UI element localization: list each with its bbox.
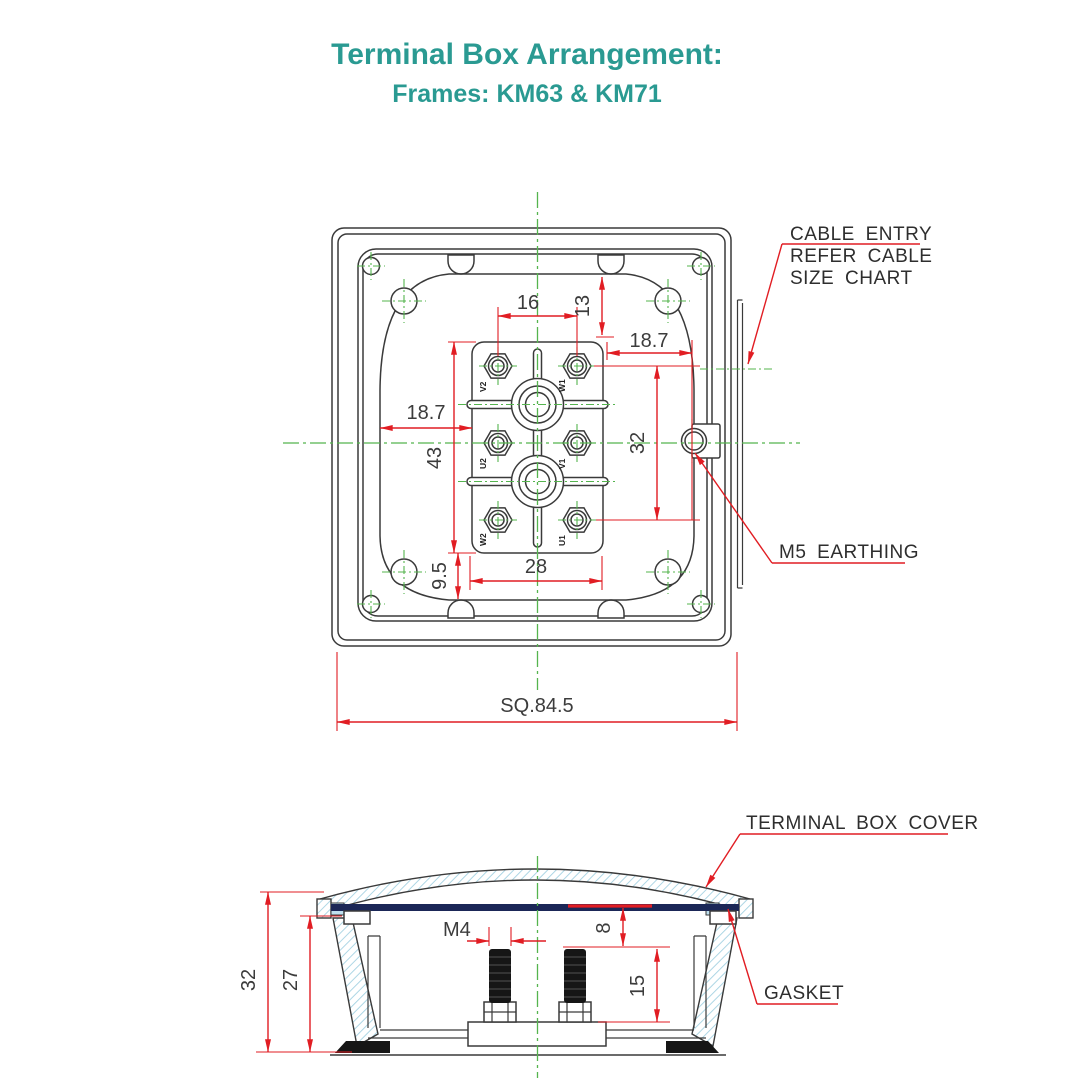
cable-entry-flange: [738, 300, 743, 588]
cable-entry-label-line3: SIZE CHART: [790, 268, 913, 289]
cover-lip-left: [317, 899, 331, 918]
dim-text-32-side: 32: [238, 969, 260, 991]
dim-text-18.7-left: 18.7: [407, 402, 446, 424]
cable-entry-label-line1: CABLE ENTRY: [790, 224, 932, 245]
dim-text-15: 15: [627, 975, 649, 997]
page-title: Terminal Box Arrangement: Frames: KM63 &…: [331, 38, 723, 108]
cover-lip-right: [739, 899, 753, 918]
cover-leader: [706, 834, 740, 887]
stud-right: [559, 949, 591, 1022]
dim-text-32: 32: [627, 432, 649, 454]
dim-text-27: 27: [280, 969, 302, 991]
cable-entry-leader: [748, 244, 782, 364]
terminal-label-v1: V1: [557, 458, 567, 469]
title-heading: Terminal Box Arrangement:: [331, 38, 723, 71]
dim-text-9.5: 9.5: [429, 562, 451, 590]
dim-text-13: 13: [572, 295, 594, 317]
terminal-box-drawing: Terminal Box Arrangement: Frames: KM63 &…: [0, 0, 1080, 1080]
earthing-terminal: [682, 424, 721, 458]
terminal-label-w1: W1: [557, 379, 567, 392]
side-view: [317, 869, 753, 1055]
dim-text-sq84.5: SQ.84.5: [500, 695, 573, 717]
dim-text-16: 16: [517, 292, 539, 314]
cover-section: [320, 869, 750, 910]
drawing-sheet: Terminal Box Arrangement: Frames: KM63 &…: [0, 0, 1080, 1080]
cover-screw-boss: [448, 600, 474, 618]
earthing-label: M5 EARTHING: [779, 542, 919, 563]
gasket-section: [331, 904, 739, 911]
dim-text-28: 28: [525, 556, 547, 578]
cover-seat-left: [344, 911, 370, 924]
terminal-label-w2: W2: [478, 533, 488, 546]
earthing-hole-inner: [685, 432, 703, 450]
cover-screw-boss: [598, 255, 624, 274]
box-wall-right: [692, 918, 737, 1046]
gasket-leader: [728, 909, 757, 1004]
terminal-label-u1: U1: [557, 535, 567, 546]
title-subheading: Frames: KM63 & KM71: [392, 80, 662, 108]
dim-text-8: 8: [593, 922, 615, 933]
terminal-label-u2: U2: [478, 458, 488, 469]
foot-seal-left: [335, 1041, 390, 1053]
dim-text-43: 43: [424, 447, 446, 469]
gasket-label: GASKET: [764, 983, 844, 1004]
terminal-label-v2: V2: [478, 381, 488, 392]
box-wall-left: [333, 918, 378, 1046]
stud-left: [484, 949, 516, 1022]
cover-screw-boss: [598, 600, 624, 618]
cover-screw-boss: [448, 255, 474, 274]
cover-label: TERMINAL BOX COVER: [746, 813, 979, 834]
cable-entry-label-line2: REFER CABLE: [790, 246, 932, 267]
dim-text-18.7-right: 18.7: [630, 330, 669, 352]
dim-text-m4: M4: [443, 919, 471, 941]
